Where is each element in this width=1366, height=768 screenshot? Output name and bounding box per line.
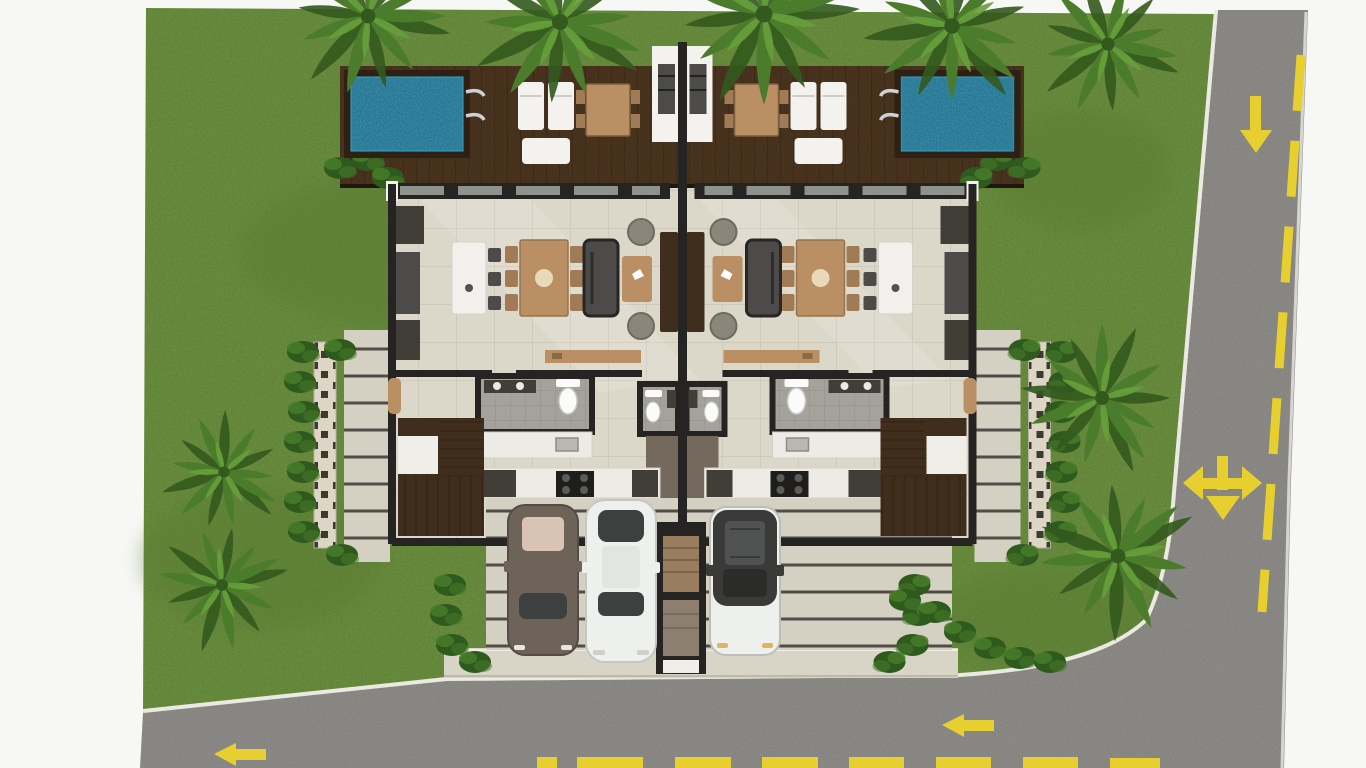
entry-walkway	[656, 522, 706, 674]
party-wall	[678, 42, 687, 544]
site-plan-svg	[0, 0, 1366, 768]
car-black-white	[706, 507, 784, 655]
car-taupe	[504, 505, 582, 655]
site-plan-render	[0, 0, 1366, 768]
car-white	[582, 500, 660, 662]
